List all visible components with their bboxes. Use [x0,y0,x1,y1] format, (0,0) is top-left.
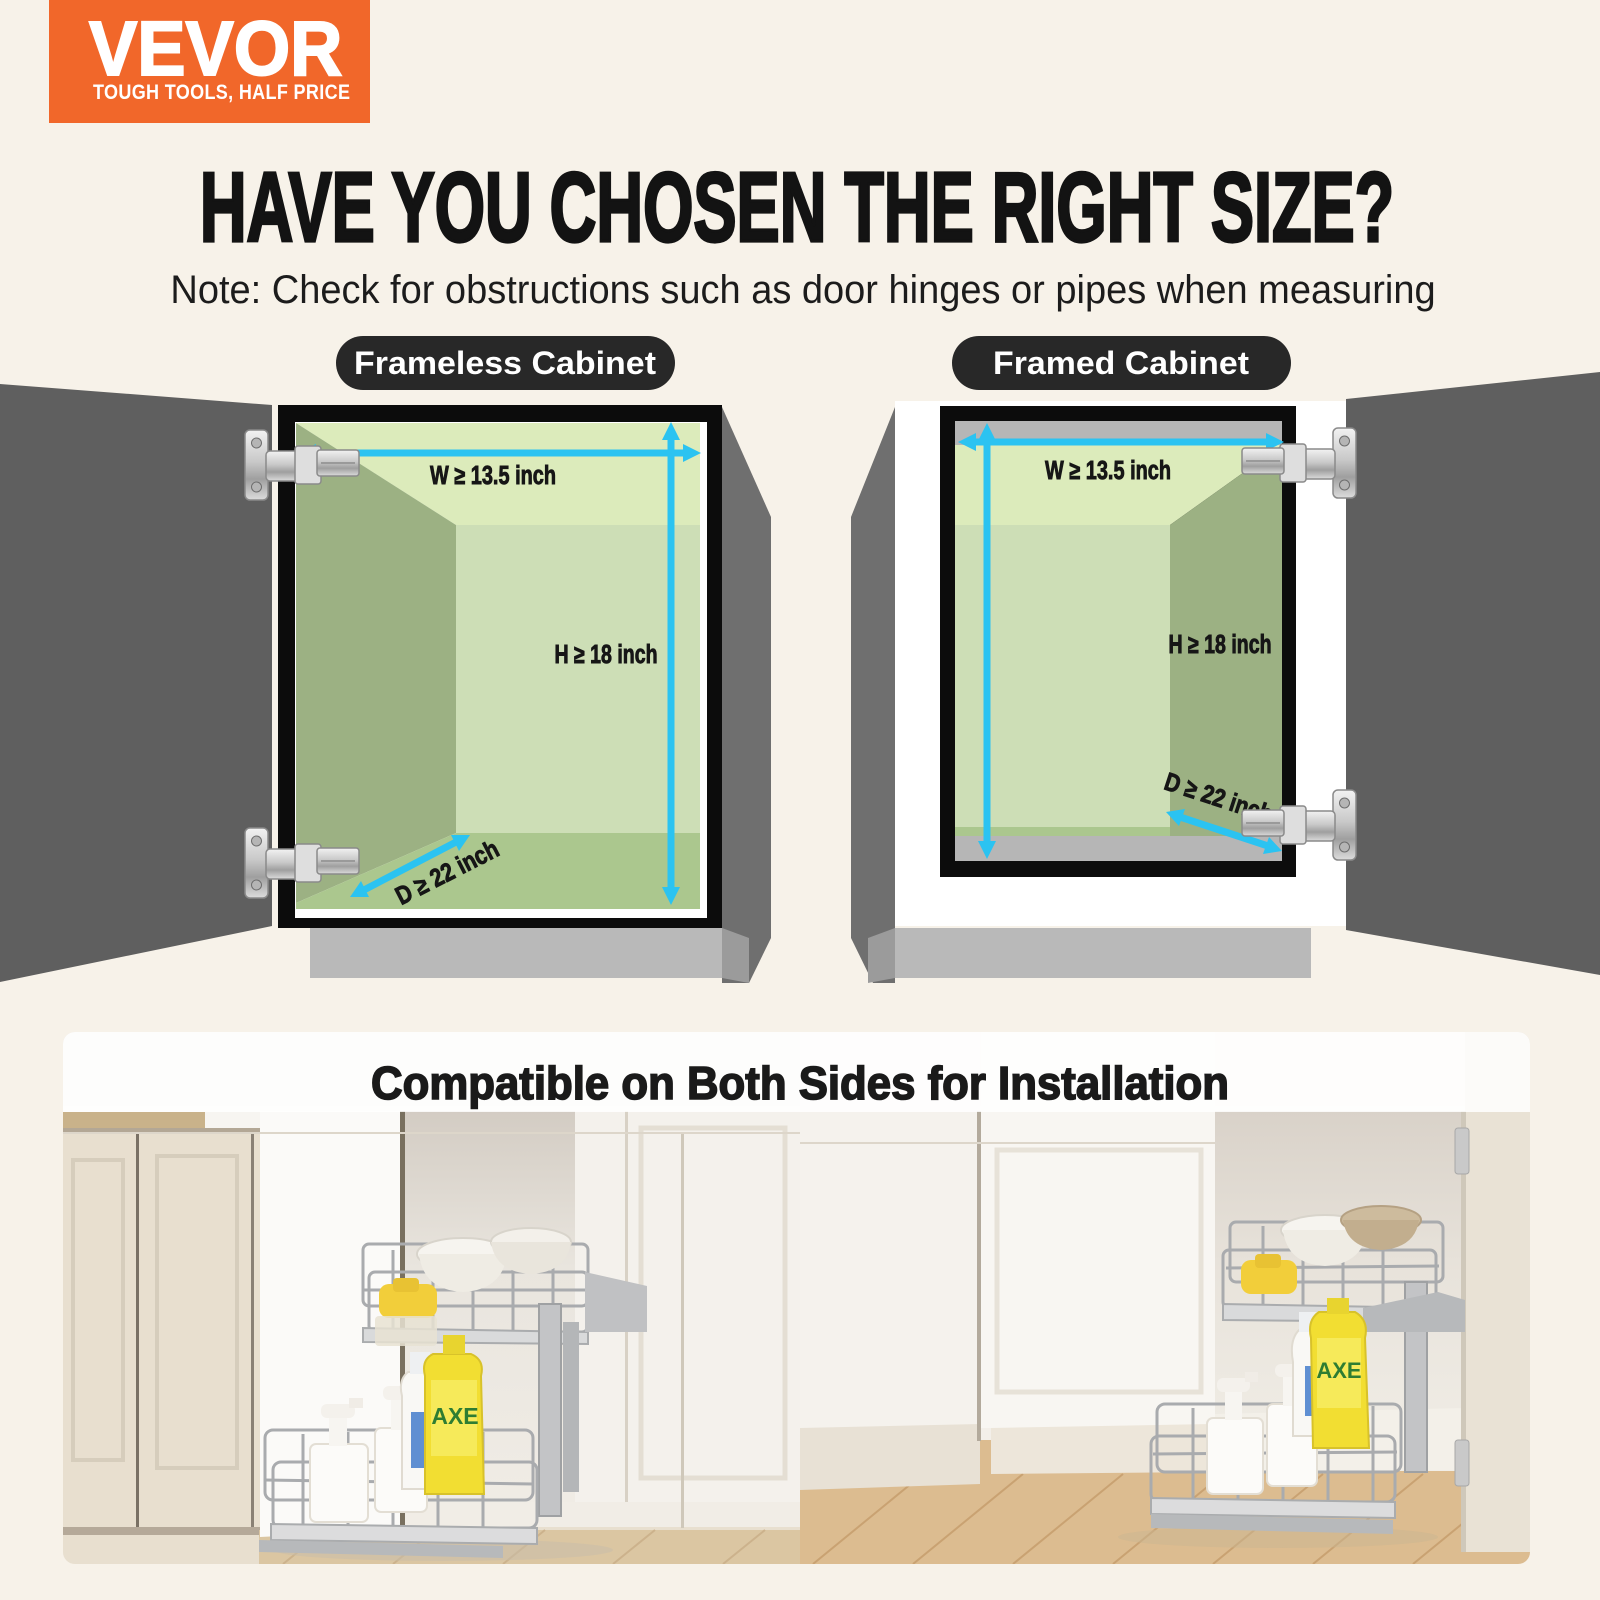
svg-text:H ≥ 18 inch: H ≥ 18 inch [1169,631,1272,659]
svg-text:H ≥ 18 inch: H ≥ 18 inch [555,641,658,669]
svg-text:AXE: AXE [1316,1358,1361,1383]
svg-text:W ≥ 13.5 inch: W ≥ 13.5 inch [430,462,556,490]
svg-text:W ≥ 13.5 inch: W ≥ 13.5 inch [1045,457,1171,485]
svg-text:AXE: AXE [431,1403,478,1429]
svg-text:Frameless Cabinet: Frameless Cabinet [354,345,656,381]
svg-text:Framed Cabinet: Framed Cabinet [993,345,1249,381]
